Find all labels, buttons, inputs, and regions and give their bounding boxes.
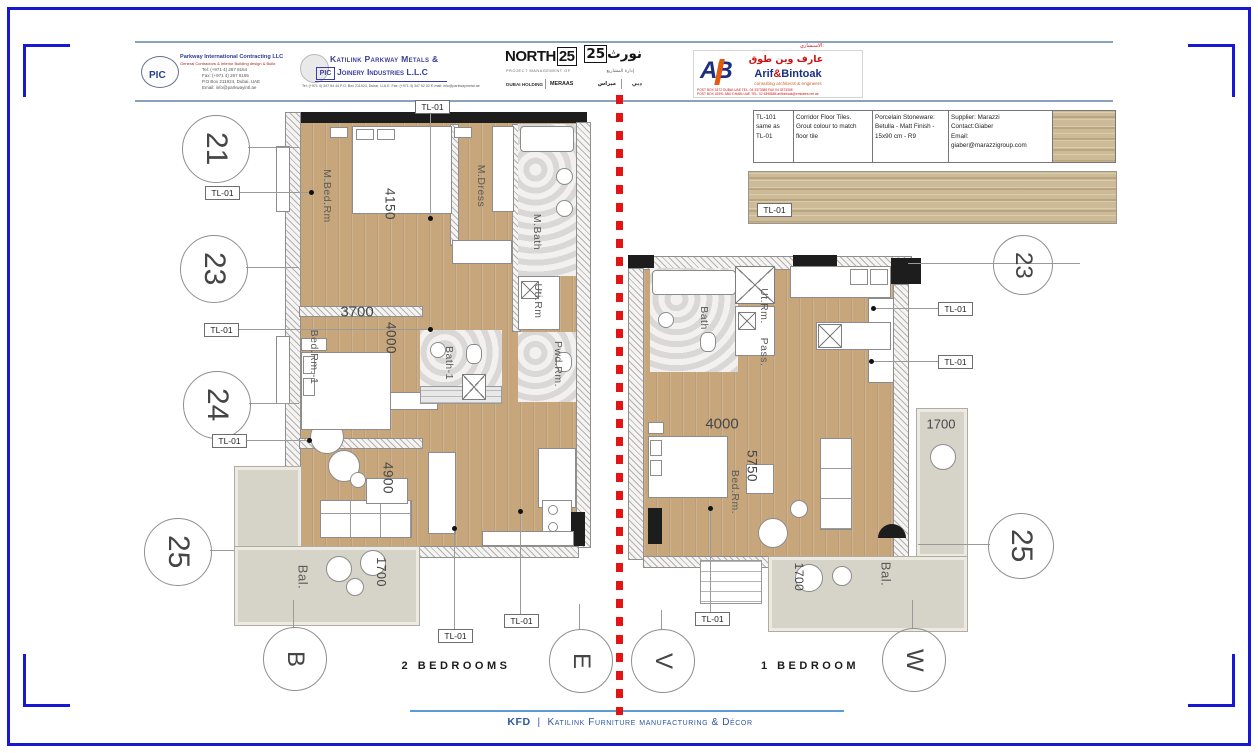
north25-logo: NORTH25 [505, 48, 577, 65]
corner-bracket-tl [23, 44, 26, 97]
corner-bracket-tl [23, 44, 70, 47]
arif-tagline: consulting architects & engineers [746, 81, 830, 86]
logo-block-north25: NORTH25 PROJECT MANAGEMENT OF DUBAI HOLD… [505, 46, 585, 96]
grid-line-B [293, 600, 294, 628]
kitchen-lower-counter-left [482, 531, 574, 546]
arif-arabic-name: عارف وين طوق [746, 54, 826, 65]
pic-logo-text: PIC [149, 70, 166, 81]
room-label-bath-right: Bath [698, 306, 710, 330]
dim-5750: 5750 [745, 450, 760, 482]
tile-sample-plank [748, 171, 1117, 224]
balcony-left [234, 546, 420, 626]
north25-name: NORTH [505, 48, 556, 65]
tag-dot [869, 359, 874, 364]
dim-1700-entry-right: 1700 [792, 563, 806, 592]
pillow-master-1 [356, 129, 374, 140]
tag-dot [452, 526, 457, 531]
grid-line-V [661, 610, 662, 630]
wardrobe-mdress-2 [452, 240, 512, 264]
footer-brand: KFD [507, 716, 530, 728]
consultant-label: الاستشاري: [800, 43, 824, 49]
kitchen-shaft-right [818, 324, 842, 348]
north25-arabic-logo: نورث25 [584, 46, 642, 62]
plan-title-left: 2 BEDROOMS [402, 660, 511, 672]
grid-bubble-E: E [549, 629, 613, 693]
pic-contact-4: Email: info@parkwayintl.ae [202, 85, 256, 91]
room-label-bed-right: Bed.Rm. [729, 470, 741, 514]
logo-block-arif-bintoak: AB عارف وين طوق Arif&Bintoak consulting … [693, 50, 863, 98]
logo-block-north25-arabic: نورث25 إدارة المشاريع دبي ميراس [574, 44, 644, 96]
grid-bubble-25-left: 25 [144, 518, 212, 586]
kitchen-counter-left [538, 448, 576, 508]
wall-black-bed-right [648, 508, 662, 544]
north25-arabic-name: نورث [607, 46, 642, 62]
room-label-mdress: M.Dress [475, 165, 487, 208]
tag-leader [245, 440, 309, 441]
sink-bath-right [658, 312, 674, 328]
katilink-name-line1: Katilink Parkway Metals & [330, 54, 439, 64]
north25-arabic-num: 25 [584, 45, 607, 63]
tile-tag-top: TL-01 [415, 100, 450, 114]
tile-tag-bottom-2: TL-01 [504, 614, 539, 628]
nightstand-master-2 [454, 127, 472, 138]
katilink-name-line2: Joinery Industries L.L.C [337, 67, 428, 77]
katilink-contact: Tel: (+971 4) 347 54 44 P.O. Box 211924,… [302, 84, 490, 88]
wardrobe-mdress-1 [492, 126, 514, 212]
grid-line-21 [248, 147, 299, 148]
footer-sep: | [538, 717, 541, 728]
shower-bath1 [420, 386, 502, 404]
balcony-left-arm [234, 466, 302, 550]
room-label-uti-left: Uti.Rm [532, 283, 544, 318]
north25-tagline: PROJECT MANAGEMENT OF [506, 69, 571, 73]
tile-tag-bottom-3: TL-01 [695, 612, 730, 626]
corner-bracket-tr [1188, 44, 1235, 47]
shaft-left-unit [462, 374, 486, 400]
dim-4150: 4150 [383, 188, 398, 220]
nightstand-right [648, 422, 664, 434]
grid-bubble-23-right: 23 [993, 235, 1053, 295]
kitchen-sink-right-1 [850, 269, 868, 285]
grid-bubble-B: B [263, 627, 327, 691]
room-label-mbed: M.Bed.Rm [321, 169, 333, 223]
washer-uti-right [738, 312, 756, 330]
tile-spec-cell: Porcelain Stoneware: Betulla - Matt Fini… [873, 111, 949, 162]
bathtub-mbath [520, 126, 574, 152]
dubai-arabic-logo: دبي [632, 81, 642, 87]
room-label-bath1: Bath-1 [443, 346, 455, 380]
tile-tag-left-1: TL-01 [205, 186, 240, 200]
window-west-2 [276, 336, 290, 404]
tag-leader [238, 192, 311, 193]
tag-dot [428, 327, 433, 332]
wc-bath1 [466, 344, 482, 364]
wall-black-right-top-1 [628, 255, 654, 268]
tile-tag: TL-01 [757, 203, 792, 217]
pic-tagline: General Contractors & Interior Building … [180, 61, 304, 66]
meraas-arabic-logo: ميراس [598, 81, 616, 87]
kitchen-island-left [428, 452, 456, 534]
grid-line-24 [249, 403, 299, 404]
grid-line-23-left [246, 267, 299, 268]
north25-arabic-tagline: إدارة المشاريع [607, 69, 634, 74]
partner-divider [545, 79, 546, 89]
tag-dot [307, 438, 312, 443]
side-table-living-left [350, 472, 366, 488]
grid-bubble-21: 21 [182, 115, 250, 183]
dim-1700-balcony-right: 1700 [927, 417, 956, 432]
corner-bracket-br [1232, 654, 1235, 707]
tag-leader [237, 329, 430, 330]
tag-leader [710, 511, 711, 613]
pic-contact-2: Fax: (+971 4) 267 8165 [202, 73, 249, 79]
dim-4900: 4900 [381, 462, 396, 494]
tag-leader [873, 308, 938, 309]
corner-bracket-br [1188, 704, 1235, 707]
wall-right-unit-west [628, 268, 644, 560]
balcony-chair-left-1 [326, 556, 352, 582]
kitchen-sink-right-2 [870, 269, 888, 285]
grid-bubble-W: W [882, 628, 946, 692]
tile-tag-bottom-1: TL-01 [438, 629, 473, 643]
grid-bubble-V: V [631, 629, 695, 693]
grid-line-25-right [918, 544, 990, 545]
dim-1700-left: 1700 [374, 557, 388, 587]
tile-supplier-cell: Supplier: Marazzi Contact:Giaber Email: … [949, 111, 1053, 162]
grid-bubble-25-right: 25 [988, 513, 1054, 579]
drawing-sheet: PIC Parkway International Contracting LL… [0, 0, 1258, 753]
balcony-table-left [346, 578, 364, 596]
sink-mbath-1 [556, 168, 573, 185]
tile-desc-cell: Corridor Floor Tiles. Grout colour to ma… [794, 111, 873, 162]
tag-leader [520, 513, 521, 615]
tile-sample-thumbnail [1053, 111, 1115, 162]
stool-right-unit [790, 500, 808, 518]
sofa-right-unit [820, 438, 852, 530]
grid-bubble-24: 24 [183, 371, 251, 439]
footer-company: Katilink Furniture manufacturing & Décor [547, 717, 752, 728]
tag-dot [871, 306, 876, 311]
bathtub-right [652, 270, 736, 295]
arif-contact-2: POST BOX 42991 ABU DHABI-UAE TEL. 02 639… [697, 92, 859, 96]
room-label-bal-left: Bal. [296, 565, 311, 589]
grid-line-E [579, 604, 580, 630]
wall-left-unit-east [576, 122, 591, 548]
room-label-pass: Pass. [758, 338, 770, 367]
hob-burner-1 [548, 505, 558, 515]
grid-line-25-left [210, 550, 234, 551]
arif-bintoak-logo-icon: AB [700, 57, 740, 85]
tag-leader [454, 531, 455, 630]
dim-3700: 3700 [340, 304, 373, 321]
logo-block-katilink: Katilink Parkway Metals & PIC Joinery In… [300, 50, 492, 95]
grid-line-W [912, 600, 913, 629]
tile-tag-left-3: TL-01 [212, 434, 247, 448]
tile-code-cell: TL-101 same as TL-01 [754, 111, 794, 162]
katilink-pic-badge: PIC [316, 67, 335, 80]
pic-company-name: Parkway International Contracting LLC [180, 54, 304, 60]
pillow-right-1 [650, 440, 662, 456]
corner-bracket-bl [23, 704, 70, 707]
arif-latin-name: Arif&Bintoak [746, 68, 830, 80]
room-label-pwd: Pwd.Rm. [552, 341, 564, 387]
corner-bracket-tr [1232, 44, 1235, 97]
grid-bubble-23-left: 23 [180, 235, 248, 303]
pic-contact-1: Tel: (+971 4) 267 8164 [202, 67, 247, 73]
wall-black-right-corner [891, 258, 921, 284]
tag-dot [708, 506, 713, 511]
room-label-bed1: Bed.Rm.-1 [308, 330, 320, 385]
footer-rule [410, 710, 844, 712]
window-west-1 [276, 146, 290, 212]
sofa-left-unit [320, 500, 412, 538]
corner-bracket-bl [23, 654, 26, 707]
logo-block-pic: PIC Parkway International Contracting LL… [140, 46, 305, 98]
dim-4000-right: 4000 [705, 416, 738, 433]
tag-dot [518, 509, 523, 514]
sink-mbath-2 [556, 200, 573, 217]
tile-tag-right-1: TL-01 [938, 302, 973, 316]
tag-dot [428, 216, 433, 221]
armchair-right-unit [758, 518, 788, 548]
dubai-holding-logo: DUBAI HOLDING [506, 82, 543, 87]
header-top-rule [135, 41, 1113, 43]
katilink-underline [315, 81, 447, 82]
balcony-chair-right-1 [930, 444, 956, 470]
wc-bath-right [700, 332, 716, 352]
plan-title-right: 1 BEDROOM [761, 660, 859, 672]
nightstand-master-1 [330, 127, 348, 138]
pillow-master-2 [377, 129, 395, 140]
pic-contact-3: P.O Box 211924, Dubai, UAE [202, 79, 260, 85]
tile-spec-table: TL-101 same as TL-01 Corridor Floor Tile… [753, 110, 1116, 163]
room-label-bal-right: Bal. [879, 562, 894, 586]
partner-divider-arabic [621, 79, 622, 89]
tag-leader [430, 114, 431, 219]
wall-right-unit-east [893, 284, 909, 560]
meraas-logo: MERAAS [550, 81, 573, 87]
dim-4000-left: 4000 [384, 322, 399, 354]
tag-leader [873, 361, 938, 362]
tag-dot [309, 190, 314, 195]
pillow-right-2 [650, 460, 662, 476]
footer-brand-line: KFD | Katilink Furniture manufacturing &… [507, 716, 752, 728]
header-bottom-rule [135, 100, 1113, 102]
balcony-table-right [832, 566, 852, 586]
room-label-uti-right: Ut.Rm. [758, 288, 770, 324]
tile-tag-left-2: TL-01 [204, 323, 239, 337]
room-label-mbath: M.Bath [531, 214, 543, 250]
tile-tag-right-2: TL-01 [938, 355, 973, 369]
unit-separation-centerline [616, 95, 623, 715]
